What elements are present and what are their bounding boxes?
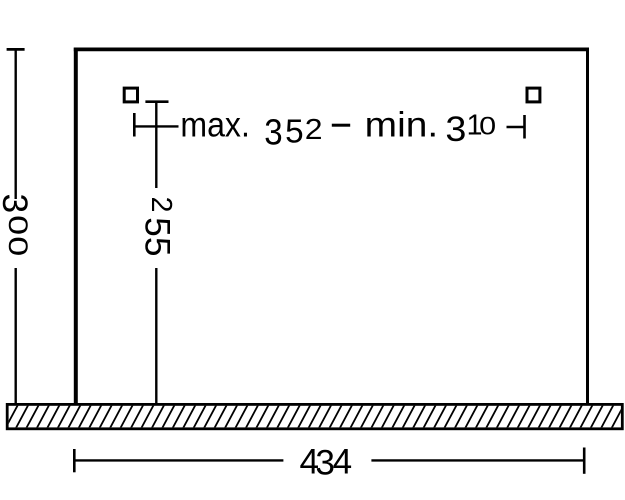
svg-text:3: 3 xyxy=(0,194,35,214)
svg-text:0: 0 xyxy=(3,236,33,256)
svg-text:2: 2 xyxy=(145,197,177,213)
svg-text:4: 4 xyxy=(333,442,353,481)
svg-text:5: 5 xyxy=(138,237,177,256)
svg-text:3: 3 xyxy=(264,112,282,153)
svg-text:0: 0 xyxy=(479,113,496,141)
svg-text:0: 0 xyxy=(3,215,33,235)
svg-text:2: 2 xyxy=(305,114,323,146)
svg-text:5: 5 xyxy=(138,217,177,236)
svg-text:max.: max. xyxy=(180,106,250,145)
svg-text:5: 5 xyxy=(285,113,304,150)
svg-text:3: 3 xyxy=(445,110,466,149)
svg-text:min.: min. xyxy=(365,106,439,145)
